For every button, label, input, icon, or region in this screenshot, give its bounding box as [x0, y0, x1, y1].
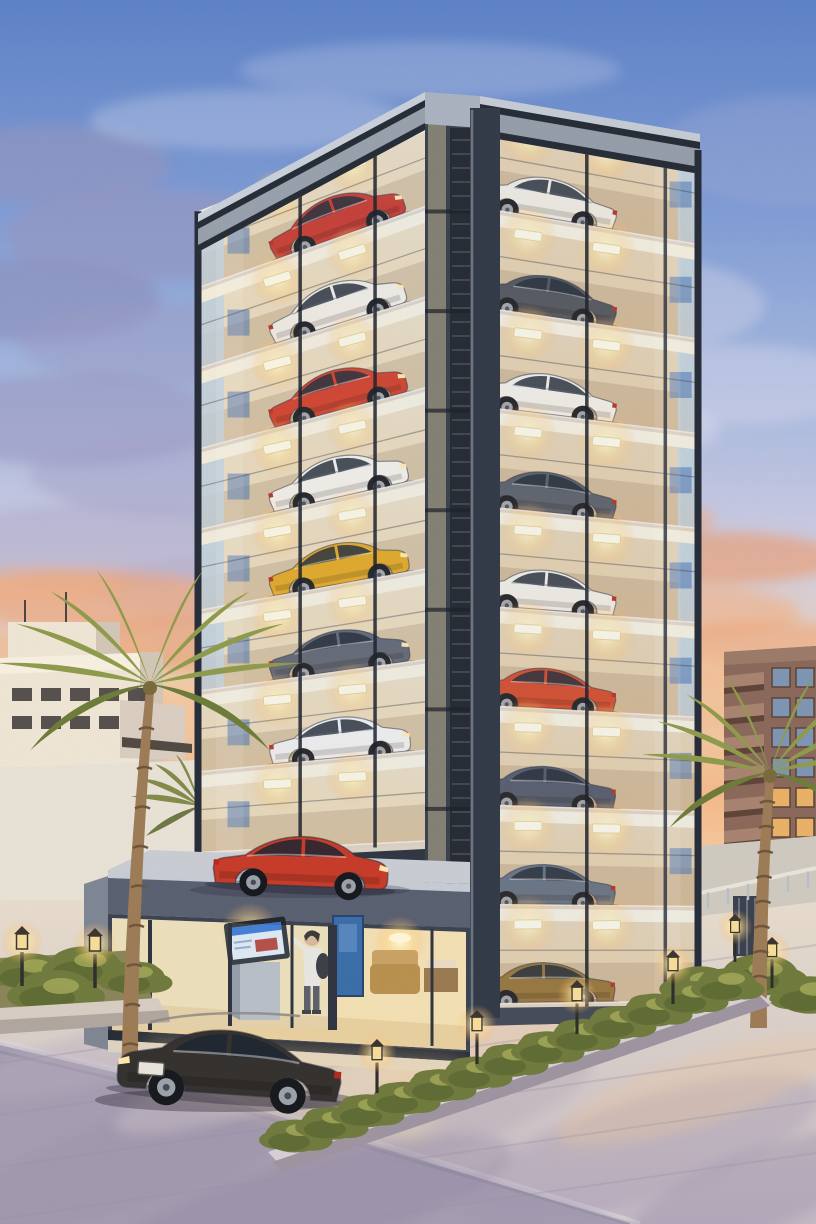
paper-grain — [0, 0, 816, 1224]
illustration-canvas — [0, 0, 816, 1224]
watercolor-car-tower-scene — [0, 0, 816, 1224]
